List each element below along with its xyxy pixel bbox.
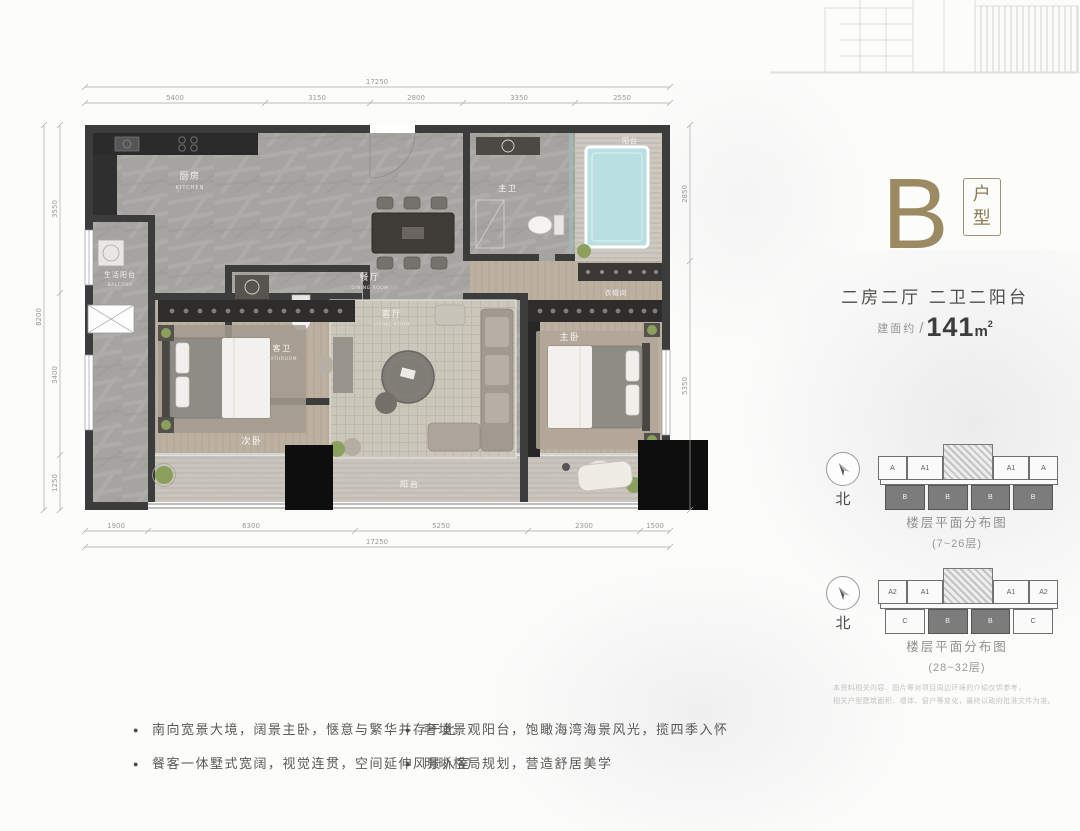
dim-right-1: 2850	[681, 185, 689, 203]
room-label-cloak: 衣帽间	[605, 288, 628, 297]
room-label-dining: 餐厅	[359, 271, 380, 283]
shaft-block	[638, 440, 708, 510]
unit-cell: A1	[907, 580, 943, 604]
unit-header: B 户 型	[882, 168, 1001, 260]
disclaimer-line-1: 本资料相关内容、图片等对项目周边环境的介绍仅供参考，	[833, 683, 1069, 696]
unit-cell: A1	[993, 456, 1029, 480]
unit-type-char-1: 户	[973, 185, 991, 205]
dim-left-overall: 8200	[35, 308, 43, 326]
dim-bottom-overall: 17250	[366, 538, 388, 546]
unit-cell-b: B	[928, 609, 968, 634]
unit-cell: A	[878, 456, 907, 480]
diagram-caption-title: 楼层平面分布图	[852, 636, 1062, 655]
living-furniture	[329, 300, 540, 458]
unit-cell-b: B	[971, 609, 1011, 634]
unit-cell: A	[1029, 456, 1058, 480]
unit-cell: A1	[993, 580, 1029, 604]
north-indicator: 北	[822, 576, 864, 633]
unit-cell-b: B	[971, 485, 1011, 510]
disclaimer-line-2: 相关户型建筑面积、墙体、窗户等变化，最终以政府批准文件为准。	[833, 696, 1069, 709]
area-value: 141	[926, 312, 974, 342]
building-schematic: A A1 A1 A B B B B	[878, 444, 1060, 510]
tub-balcony	[577, 147, 648, 258]
dim-bottom-4: 2300	[575, 522, 593, 530]
area-slash: /	[919, 320, 923, 337]
dim-top-1: 5400	[166, 94, 184, 102]
room-label-utility: 生活阳台	[104, 270, 136, 279]
room-label-dining-en: DINING ROOM	[351, 285, 388, 291]
area-prefix: 建面约	[877, 323, 916, 335]
room-label-kitchen: 厨房	[179, 170, 200, 182]
building-schematic: A2 A1 A1 A2 C B B C	[878, 568, 1060, 634]
dining-furniture	[372, 197, 454, 269]
dim-bottom-5: 1500	[646, 522, 664, 530]
unit-cell: A2	[878, 580, 907, 604]
unit-type-box: 户 型	[963, 178, 1001, 236]
unit-cell-b: B	[928, 485, 968, 510]
feature-item: 明晰格局规划，营造舒居美学	[405, 753, 728, 772]
room-label-balcony: 阳台	[400, 479, 420, 489]
floorplan-poster: 厨房 KITCHEN 生活阳台 BALCONY 客卫 BATHROOM 餐厅 D…	[0, 0, 1080, 771]
room-label-kitchen-en: KITCHEN	[176, 185, 205, 191]
area-superscript: 2	[988, 319, 993, 329]
room-label-living-en: LIVING ROOM	[374, 322, 410, 328]
architectural-sketch	[770, 0, 1080, 80]
room-label-master: 主卧	[559, 331, 580, 343]
dim-bottom-2: 6300	[242, 522, 260, 530]
dim-top-overall: 17250	[366, 78, 388, 86]
dim-bottom-1: 1900	[107, 522, 125, 530]
room-label-utility-en: BALCONY	[108, 282, 133, 288]
dim-bottom-3: 5250	[432, 522, 450, 530]
dim-top-2: 3150	[308, 94, 326, 102]
north-label: 北	[822, 488, 864, 509]
balcony-railing	[148, 504, 670, 508]
unit-cell-b: B	[1013, 485, 1053, 510]
dim-right-2: 5350	[681, 377, 689, 395]
diagram-caption: 楼层平面分布图 (7~26层)	[852, 512, 1062, 551]
dim-left-3: 1250	[51, 474, 59, 492]
unit-cell-c: C	[1013, 609, 1053, 634]
room-label-bedroom2: 次卧	[241, 435, 262, 447]
cloak-furniture	[578, 263, 662, 281]
unit-type-char-2: 型	[973, 209, 991, 229]
room-label-master-bath: 主卫	[499, 183, 518, 193]
unit-cell-c: C	[885, 609, 925, 634]
room-label-guest-bath: 客卫	[273, 343, 292, 353]
diagram-caption-title: 楼层平面分布图	[852, 512, 1062, 531]
dim-top-3: 2800	[407, 94, 425, 102]
unit-cell: A2	[1029, 580, 1058, 604]
dim-left-1: 3550	[51, 200, 59, 218]
feature-item: 奢境景观阳台，饱瞰海湾海景风光，揽四季入怀	[405, 719, 728, 738]
dim-top-4: 3350	[510, 94, 528, 102]
shaft-block	[285, 445, 333, 510]
room-label-guest-bath-en: BATHROOM	[267, 356, 297, 362]
diagram-caption: 楼层平面分布图 (28~32层)	[852, 636, 1062, 675]
diagram-caption-range: (7~26层)	[852, 535, 1062, 551]
area-unit: m	[974, 323, 987, 340]
compass-icon	[826, 452, 860, 486]
core-hatched-cell	[943, 568, 993, 604]
diagram-caption-range: (28~32层)	[852, 659, 1062, 675]
room-label-living: 客厅	[381, 308, 402, 320]
north-indicator: 北	[822, 452, 864, 509]
unit-letter: B	[882, 168, 951, 260]
dim-top-5: 2550	[613, 94, 631, 102]
unit-cell: A1	[907, 456, 943, 480]
area-line: 建面约/141m2	[800, 312, 1070, 343]
compass-icon	[826, 576, 860, 610]
core-hatched-cell	[943, 444, 993, 480]
room-label-tub-balcony: 阳台	[622, 136, 638, 145]
glass-partition	[569, 133, 573, 254]
dim-left-2: 3400	[51, 366, 59, 384]
rooms-summary: 二房二厅 二卫二阳台	[800, 283, 1070, 308]
north-label: 北	[822, 612, 864, 633]
floorplan-drawing: 厨房 KITCHEN 生活阳台 BALCONY 客卫 BATHROOM 餐厅 D…	[30, 55, 720, 580]
unit-cell-b: B	[885, 485, 925, 510]
disclaimer: 本资料相关内容、图片等对项目周边环境的介绍仅供参考， 相关户型建筑面积、墙体、窗…	[833, 683, 1069, 708]
